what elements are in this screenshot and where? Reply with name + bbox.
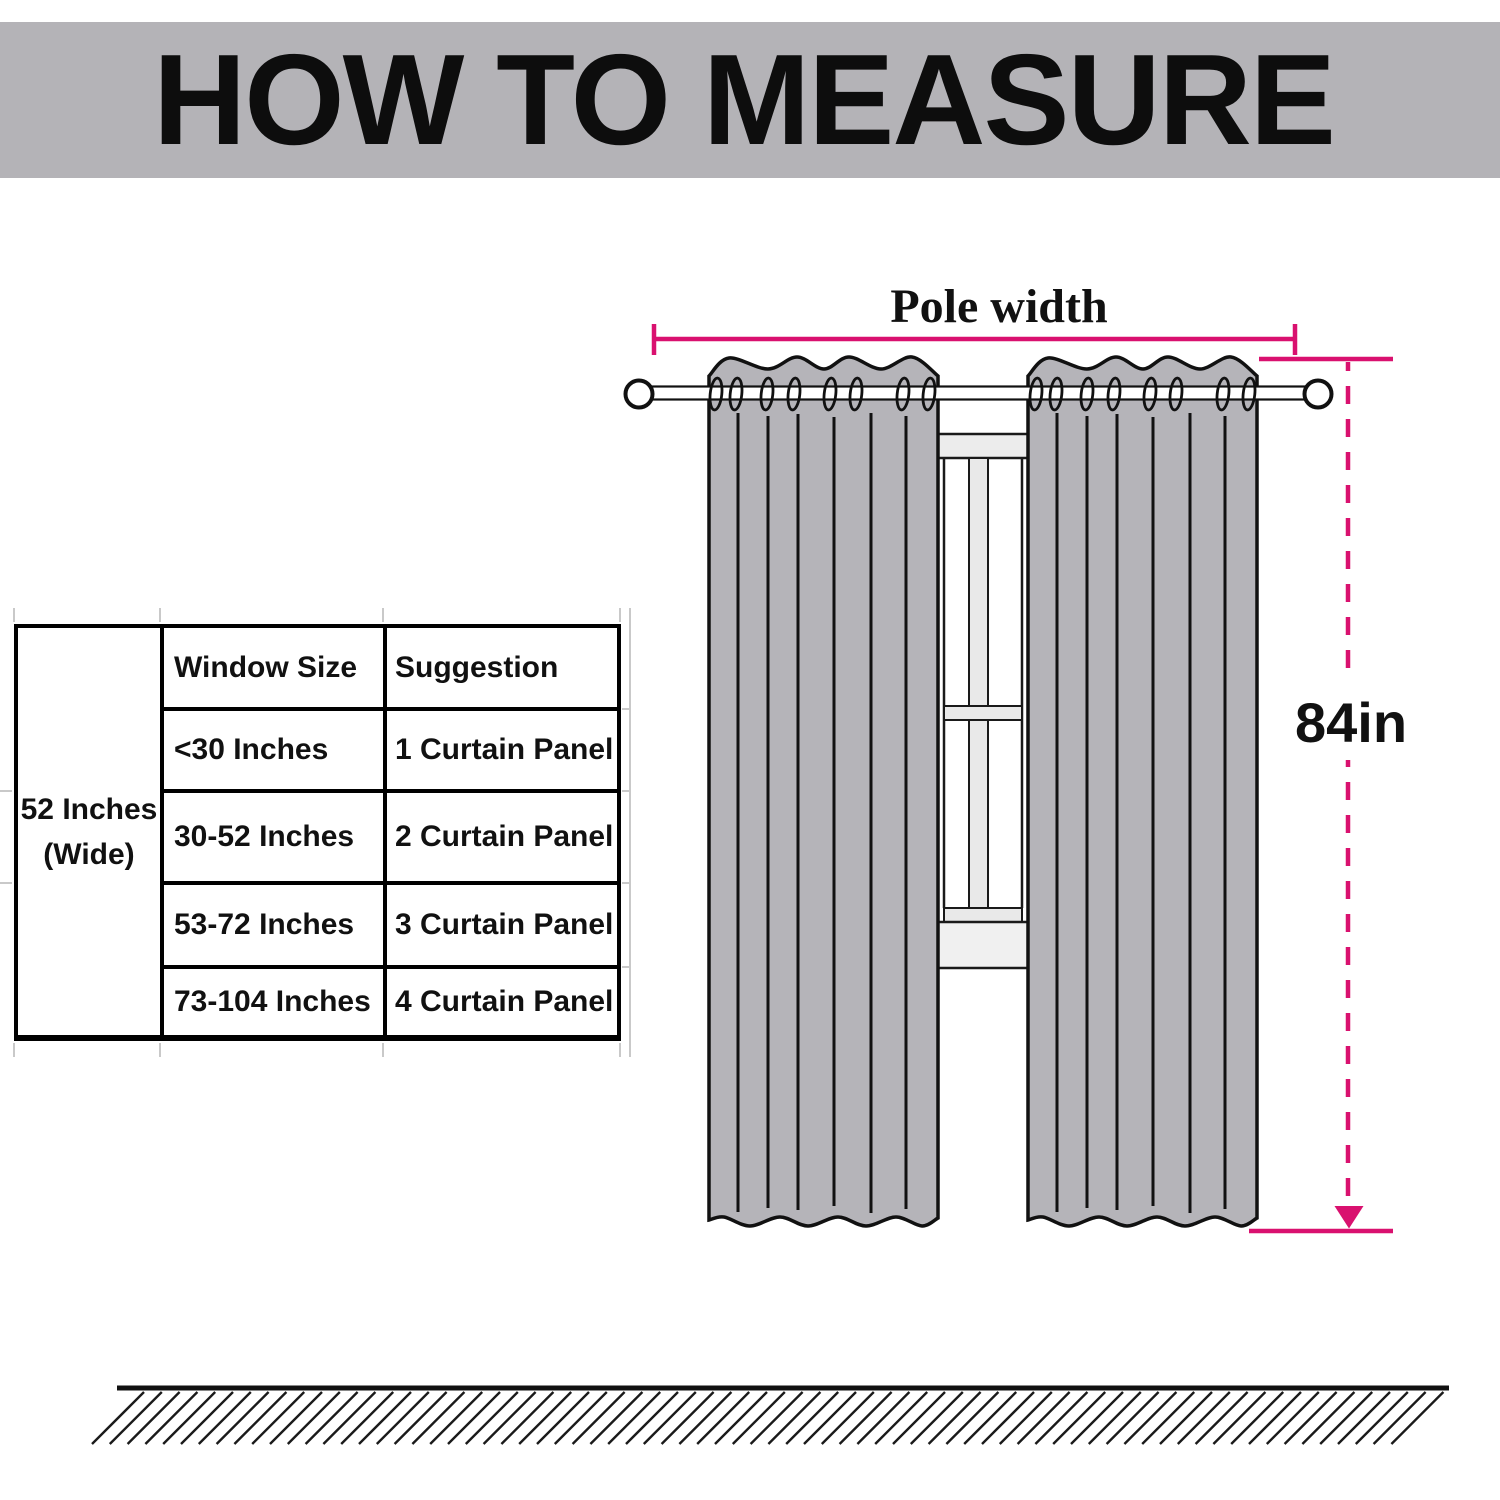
svg-text:84in: 84in [1295, 691, 1407, 754]
svg-text:Pole width: Pole width [890, 280, 1107, 333]
